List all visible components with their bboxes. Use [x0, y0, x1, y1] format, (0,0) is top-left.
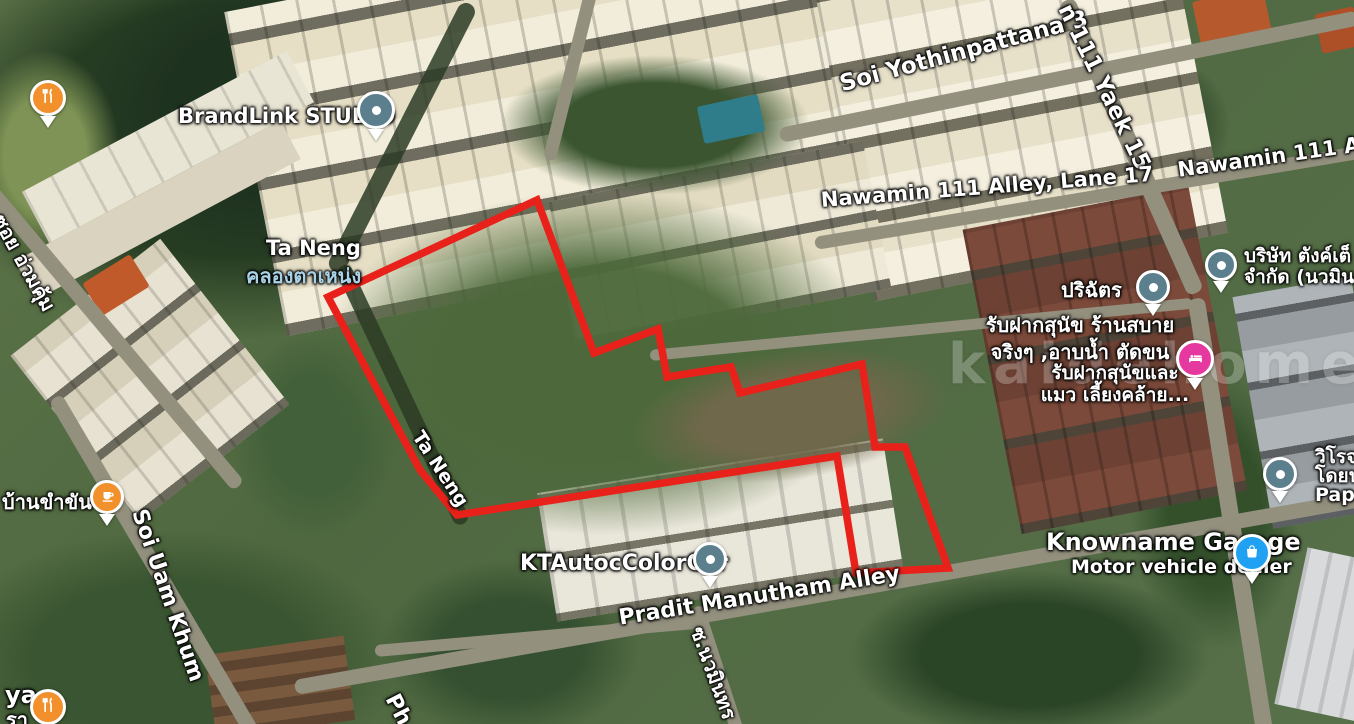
company-line1: บริษัท ตังค์เต็: [1244, 246, 1354, 267]
brandlink-place-marker[interactable]: [357, 91, 395, 129]
prichat-place-marker[interactable]: [1136, 270, 1170, 304]
pet-boarding-line1: รับฝากสุนัขและ: [1040, 362, 1190, 384]
satellite-map[interactable]: kaidehome.com BrandLink STUDIO Ta Neng ค…: [0, 0, 1354, 724]
wirot-line3: Paper: [1315, 486, 1354, 505]
restaurant-icon: [40, 697, 56, 717]
restaurant-marker-south[interactable]: [30, 689, 66, 724]
canal-label-ta-neng-thai[interactable]: คลองตาเหน่ง: [246, 260, 361, 292]
restaurant-icon: [40, 88, 56, 108]
place-dot-icon: [1217, 261, 1226, 270]
lodging-marker[interactable]: [1176, 340, 1214, 378]
knowname-garage-marker[interactable]: [1233, 534, 1271, 572]
place-label-company[interactable]: บริษัท ตังค์เต็ จำกัด (นวมิน: [1244, 246, 1354, 288]
place-label-baan-khamkhan[interactable]: บ้านขำขัน: [2, 486, 92, 518]
cafe-marker[interactable]: [90, 480, 124, 514]
restaurant-marker[interactable]: [30, 80, 66, 116]
wirot-place-marker[interactable]: [1263, 457, 1297, 491]
company-line2: จำกัด (นวมิน: [1244, 267, 1354, 288]
place-label-ra[interactable]: รา: [6, 704, 28, 724]
place-label-pet-shop[interactable]: รับฝากสุนัข ร้านสบาย จริงๆ ,อาบน้ำ ตัดขน: [975, 312, 1185, 366]
place-label-wirot[interactable]: วิโรจน์ โดยนา Paper: [1315, 448, 1354, 505]
company-place-marker[interactable]: [1205, 249, 1237, 281]
pet-boarding-line2: แมว เลี้ยงคล้าย...: [1040, 384, 1190, 406]
canal-label-ta-neng[interactable]: Ta Neng: [266, 236, 361, 260]
shopping-bag-icon: [1244, 543, 1260, 563]
pet-shop-line1: รับฝากสุนัข ร้านสบาย: [975, 312, 1185, 339]
ktauto-place-marker[interactable]: [693, 542, 727, 576]
place-dot-icon: [372, 106, 381, 115]
bed-icon: [1187, 349, 1204, 370]
coffee-cup-icon: [100, 488, 115, 507]
place-dot-icon: [1149, 283, 1158, 292]
land-plot-outline: [328, 200, 948, 573]
place-dot-icon: [706, 555, 715, 564]
place-dot-icon: [1276, 470, 1285, 479]
place-label-prichat[interactable]: ปริฉัตร: [1061, 274, 1122, 306]
place-label-pet-boarding[interactable]: รับฝากสุนัขและ แมว เลี้ยงคล้าย...: [1040, 362, 1190, 406]
